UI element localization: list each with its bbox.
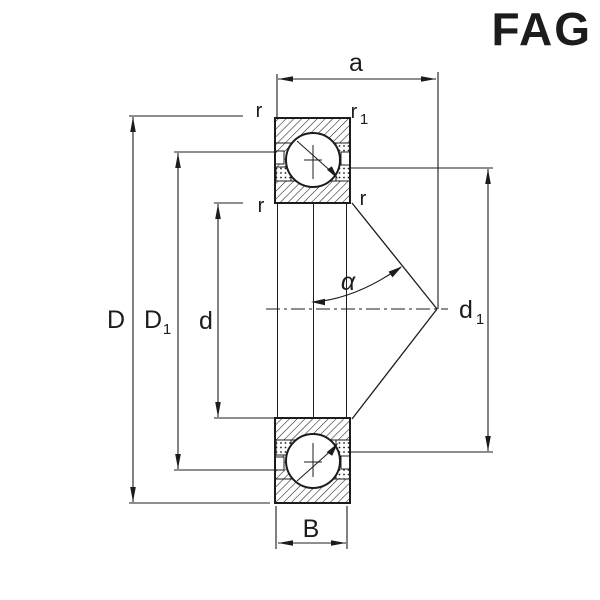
bearing-drawing-page: FAG (0, 0, 600, 600)
bearing-top-section (275, 118, 350, 203)
fag-logo: FAG (491, 3, 592, 55)
background (0, 0, 600, 600)
shoulder-notch-right-bottom (341, 456, 350, 469)
shoulder-notch-left-bottom (275, 457, 284, 470)
label-r-mid-left: r (258, 195, 265, 217)
label-D: D (107, 306, 125, 334)
label-a: a (349, 49, 363, 77)
label-r1: r (351, 101, 358, 123)
label-B: B (303, 515, 320, 543)
label-D1: D (144, 306, 162, 334)
bearing-technical-drawing: FAG (0, 0, 600, 600)
label-d1: d (459, 296, 473, 324)
shoulder-notch-right (341, 152, 350, 165)
label-d1-sub: 1 (476, 311, 484, 328)
label-d: d (199, 307, 213, 335)
label-r-mid-right: r (360, 188, 367, 210)
bearing-bottom-section (275, 418, 350, 503)
label-r-top-left: r (256, 100, 263, 122)
label-alpha: α (341, 268, 356, 296)
shoulder-notch-left (275, 151, 284, 164)
label-D1-sub: 1 (163, 321, 171, 338)
label-r1-sub: 1 (360, 111, 368, 128)
